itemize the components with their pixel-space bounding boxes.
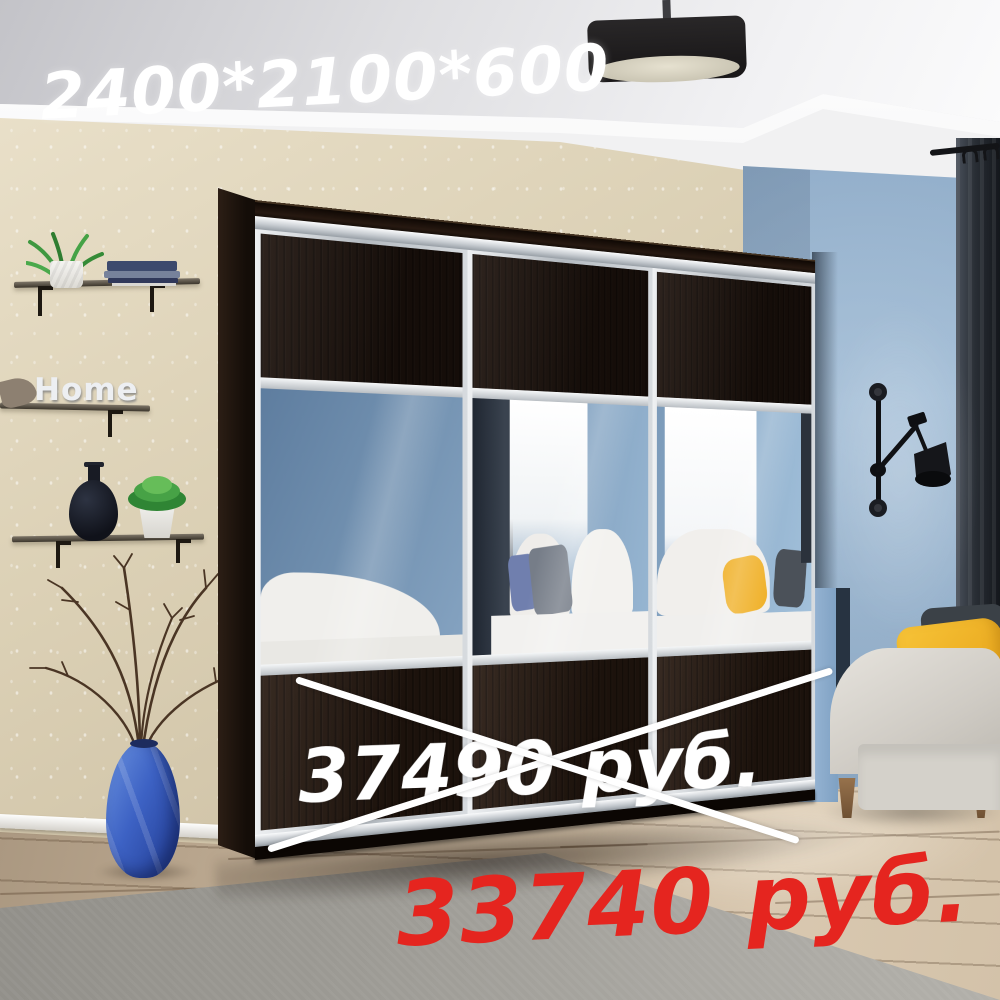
book	[107, 261, 177, 271]
door-mirror	[472, 398, 648, 655]
mirror-reflection-pillow	[721, 553, 769, 617]
door-mirror	[657, 406, 811, 647]
shelf-bracket	[108, 410, 112, 437]
plant-pot	[50, 261, 83, 288]
shelf-bracket	[150, 284, 154, 312]
wardrobe-side-panel	[218, 188, 256, 864]
book-pages	[112, 283, 176, 286]
floor-vase-mouth	[130, 739, 158, 748]
wall-lamp	[850, 366, 965, 531]
curtain-hook	[982, 144, 999, 161]
shelf-bracket	[38, 286, 42, 316]
mirror-reflection-pillow	[507, 553, 537, 612]
mirror-reflection-sofa	[572, 529, 633, 616]
mirror-reflection-sofa	[509, 534, 570, 618]
door-top-panel	[657, 272, 811, 404]
sofa-seat	[858, 744, 1000, 810]
black-vase	[69, 480, 118, 541]
door-top-panel	[472, 254, 648, 396]
mirror-reflection-sofa	[657, 529, 770, 616]
mirror-reflection-pillow	[772, 548, 807, 608]
door-top-panel	[261, 234, 463, 387]
mirror-reflection-curtain	[472, 398, 513, 655]
book	[104, 271, 180, 278]
curtain-hook	[961, 147, 978, 164]
door-mirror	[261, 388, 463, 665]
room-scene: Home	[0, 0, 1000, 1000]
mirror-reflection-window	[665, 406, 756, 603]
mirror-reflection-sofa	[261, 571, 440, 645]
mirror-reflection-pillow	[528, 544, 574, 617]
mirror-reflection-seat	[491, 611, 648, 654]
home-sign: Home	[34, 372, 154, 408]
mirror-reflection-curtain	[801, 413, 811, 563]
book-stack	[104, 261, 182, 286]
succulent-plant	[142, 476, 172, 494]
pendant-lamp	[586, 0, 749, 99]
mirror-reflection-window	[509, 399, 587, 597]
